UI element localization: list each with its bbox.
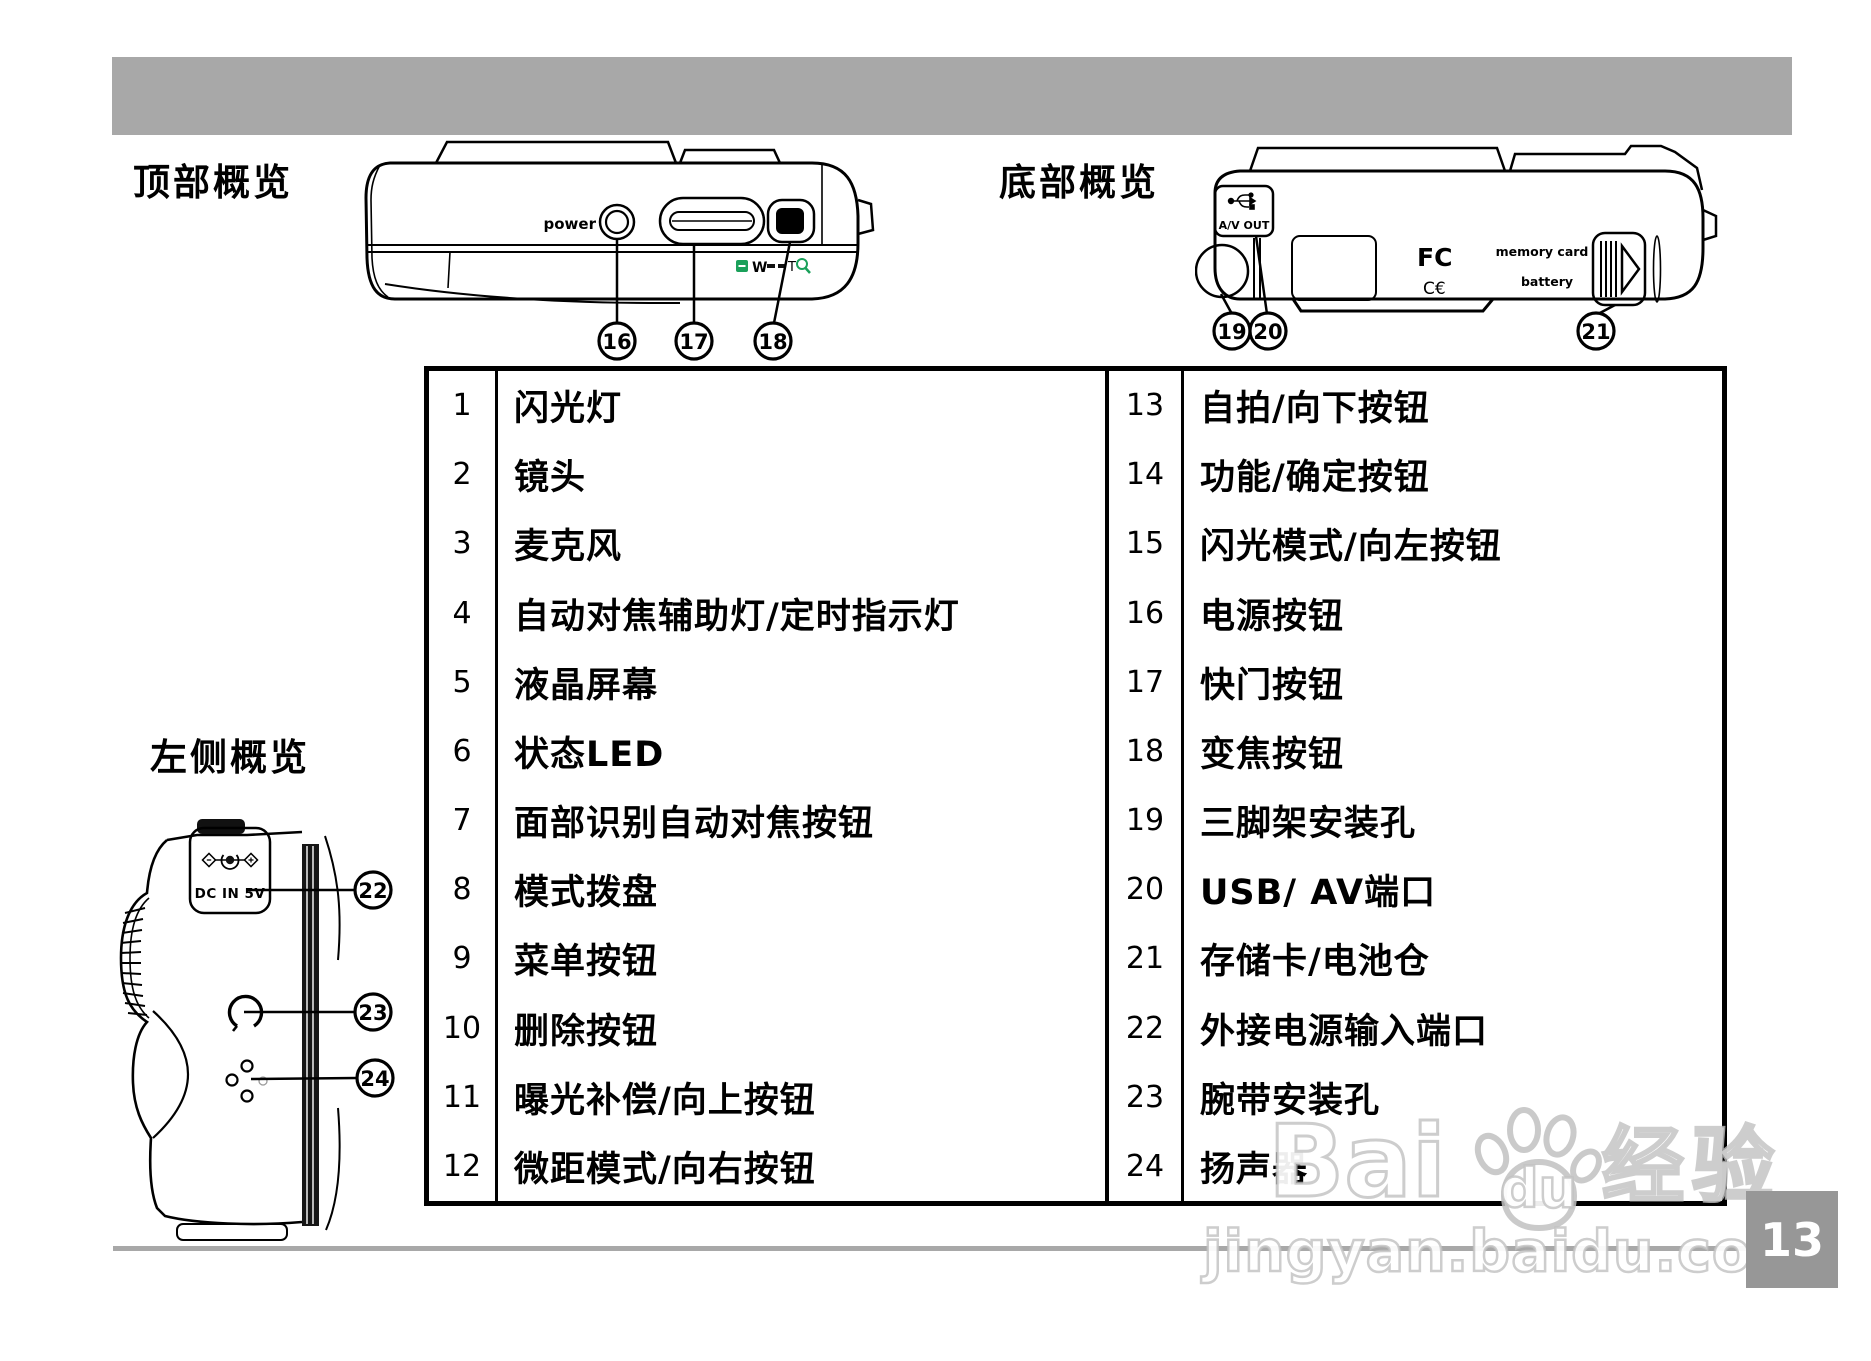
- parts-table-right-half: 13自拍/向下按钮14功能/确定按钮15闪光模式/向左按钮16电源按钮17快门按…: [1109, 371, 1722, 1201]
- latch-ribs: [1601, 241, 1616, 297]
- body-contour: [371, 165, 388, 297]
- row-label: 功能/确定按钮: [1184, 440, 1722, 509]
- wide-label: W: [752, 260, 767, 276]
- row-number: 4: [429, 579, 498, 648]
- row-number: 10: [429, 994, 498, 1063]
- row-number: 15: [1109, 509, 1184, 578]
- row-number: 22: [1109, 994, 1184, 1063]
- table-row: 22外接电源输入端口: [1109, 994, 1722, 1063]
- watermark-brand-du: du: [1500, 1162, 1577, 1216]
- section-title-left-overview: 左侧概览: [150, 738, 310, 779]
- camera-left-view-diagram: DC IN 5V 22 23 24: [105, 808, 415, 1258]
- top-strip-2: [680, 150, 780, 163]
- magnifier-icon: [797, 259, 807, 269]
- watermark-url: jingyan.baidu.com: [1203, 1224, 1813, 1281]
- speaker-holes: [227, 1061, 268, 1102]
- table-row: 6状态LED: [429, 717, 1105, 786]
- table-row: 7面部识别自动对焦按钮: [429, 786, 1105, 855]
- callout-22-num: 22: [358, 879, 387, 903]
- callout-24-num: 24: [360, 1067, 389, 1091]
- page-number: 13: [1760, 1213, 1824, 1267]
- table-row: 4自动对焦辅助灯/定时指示灯: [429, 579, 1105, 648]
- row-label: 曝光补偿/向上按钮: [498, 1063, 1105, 1132]
- callout-17-num: 17: [679, 330, 708, 354]
- row-number: 24: [1109, 1132, 1184, 1201]
- top-nub: [197, 819, 245, 834]
- table-row: 1闪光灯: [429, 371, 1105, 440]
- table-row: 8模式拨盘: [429, 855, 1105, 924]
- row-number: 1: [429, 371, 498, 440]
- row-number: 14: [1109, 440, 1184, 509]
- row-number: 8: [429, 855, 498, 924]
- row-label: 模式拨盘: [498, 855, 1105, 924]
- fcc-mark: FC: [1417, 243, 1452, 272]
- row-label: 删除按钮: [498, 994, 1105, 1063]
- flange-top: [325, 836, 340, 960]
- row-number: 9: [429, 924, 498, 993]
- zoom-scale-legend: W T: [736, 259, 810, 276]
- grip-band: [302, 844, 319, 1226]
- bottom-foot: [177, 1224, 287, 1240]
- table-row: 14功能/确定按钮: [1109, 440, 1722, 509]
- table-row: 19三脚架安装孔: [1109, 786, 1722, 855]
- row-number: 20: [1109, 855, 1184, 924]
- row-label: 变焦按钮: [1184, 717, 1722, 786]
- tele-label: T: [787, 260, 796, 275]
- row-number: 12: [429, 1132, 498, 1201]
- row-label: 自拍/向下按钮: [1184, 371, 1722, 440]
- page-number-box: 13: [1746, 1191, 1838, 1288]
- table-row: 21存储卡/电池仓: [1109, 924, 1722, 993]
- table-row: 3麦克风: [429, 509, 1105, 578]
- power-label: power: [544, 215, 597, 233]
- parts-table: 1闪光灯2镜头3麦克风4自动对焦辅助灯/定时指示灯5液晶屏幕6状态LED7面部识…: [424, 366, 1727, 1206]
- row-number: 2: [429, 440, 498, 509]
- row-number: 16: [1109, 579, 1184, 648]
- row-number: 19: [1109, 786, 1184, 855]
- table-row: 13自拍/向下按钮: [1109, 371, 1722, 440]
- table-row: 18变焦按钮: [1109, 717, 1722, 786]
- strap-lug: [858, 200, 873, 234]
- table-row: 12微距模式/向右按钮: [429, 1132, 1105, 1201]
- polarity-icon: [202, 853, 257, 868]
- callout-20-num: 20: [1253, 320, 1282, 344]
- row-label: USB/ AV端口: [1184, 855, 1722, 924]
- lens-ring-contour: [130, 898, 149, 1018]
- row-number: 13: [1109, 371, 1184, 440]
- usb-icon: [1229, 193, 1255, 209]
- row-label: 自动对焦辅助灯/定时指示灯: [498, 579, 1105, 648]
- callout-23-num: 23: [358, 1001, 387, 1025]
- table-row: 11曝光补偿/向上按钮: [429, 1063, 1105, 1132]
- row-number: 3: [429, 509, 498, 578]
- row-label: 麦克风: [498, 509, 1105, 578]
- table-row: 16电源按钮: [1109, 579, 1722, 648]
- callout-18-num: 18: [758, 330, 787, 354]
- parts-table-left-half: 1闪光灯2镜头3麦克风4自动对焦辅助灯/定时指示灯5液晶屏幕6状态LED7面部识…: [429, 371, 1109, 1201]
- row-label: 闪光模式/向左按钮: [1184, 509, 1722, 578]
- table-row: 15闪光模式/向左按钮: [1109, 509, 1722, 578]
- row-number: 17: [1109, 648, 1184, 717]
- table-row: 20USB/ AV端口: [1109, 855, 1722, 924]
- camera-top-view-diagram: power W T 16 17 18: [350, 138, 890, 368]
- row-label: 菜单按钮: [498, 924, 1105, 993]
- header-banner: [112, 57, 1792, 135]
- row-label: 面部识别自动对焦按钮: [498, 786, 1105, 855]
- row-number: 21: [1109, 924, 1184, 993]
- row-number: 6: [429, 717, 498, 786]
- watermark-brand-bai: Bai: [1268, 1112, 1446, 1212]
- dc-in-label: DC IN 5V: [195, 886, 266, 902]
- lens-barrel-arc: [153, 1011, 188, 1138]
- row-number: 18: [1109, 717, 1184, 786]
- ce-mark: C€: [1423, 279, 1446, 299]
- strap-lug: [1703, 210, 1716, 240]
- row-number: 7: [429, 786, 498, 855]
- row-label: 电源按钮: [1184, 579, 1722, 648]
- row-label: 镜头: [498, 440, 1105, 509]
- zoom-lever: [776, 208, 804, 234]
- callout-16-num: 16: [602, 330, 631, 354]
- row-label: 快门按钮: [1184, 648, 1722, 717]
- body-seam: [368, 245, 858, 252]
- zoom-dash: [767, 264, 775, 268]
- inner-door-outline: [1292, 236, 1376, 300]
- section-title-top-overview: 顶部概览: [133, 163, 293, 204]
- row-label: 闪光灯: [498, 371, 1105, 440]
- section-title-bottom-overview: 底部概览: [999, 163, 1159, 204]
- battery-label: battery: [1521, 274, 1573, 289]
- latch-seam: [1654, 236, 1661, 302]
- flange-bottom: [326, 1108, 340, 1230]
- row-label: 存储卡/电池仓: [1184, 924, 1722, 993]
- table-row: 5液晶屏幕: [429, 648, 1105, 717]
- bottom-strip: [1250, 148, 1505, 171]
- power-button-inner: [606, 211, 628, 233]
- row-number: 23: [1109, 1063, 1184, 1132]
- row-number: 5: [429, 648, 498, 717]
- table-row: 9菜单按钮: [429, 924, 1105, 993]
- memory-card-label: memory card: [1496, 244, 1589, 259]
- row-label: 外接电源输入端口: [1184, 994, 1722, 1063]
- table-row: 2镜头: [429, 440, 1105, 509]
- strap-eyelet-notch: [233, 1026, 237, 1031]
- av-out-label: A/V OUT: [1219, 219, 1270, 232]
- camera-bottom-view-diagram: A/V OUT FC C€ memory card battery 19 20 …: [1195, 138, 1735, 368]
- callout-19-num: 19: [1217, 320, 1246, 344]
- magnifier-handle: [806, 268, 811, 273]
- table-row: 10删除按钮: [429, 994, 1105, 1063]
- callout-21-num: 21: [1581, 320, 1610, 344]
- latch-arrow: [1622, 246, 1639, 292]
- row-label: 液晶屏幕: [498, 648, 1105, 717]
- row-number: 11: [429, 1063, 498, 1132]
- row-label: 三脚架安装孔: [1184, 786, 1722, 855]
- top-strip: [436, 142, 676, 163]
- table-row: 17快门按钮: [1109, 648, 1722, 717]
- row-label: 状态LED: [498, 717, 1105, 786]
- row-label: 微距模式/向右按钮: [498, 1132, 1105, 1201]
- bottom-strip-2: [1510, 146, 1702, 190]
